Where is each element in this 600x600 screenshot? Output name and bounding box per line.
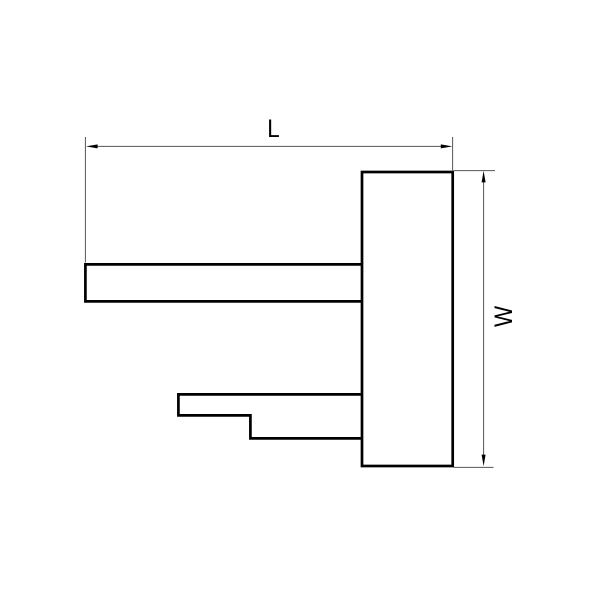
svg-text:L: L bbox=[267, 115, 279, 144]
svg-text:W: W bbox=[490, 306, 519, 327]
